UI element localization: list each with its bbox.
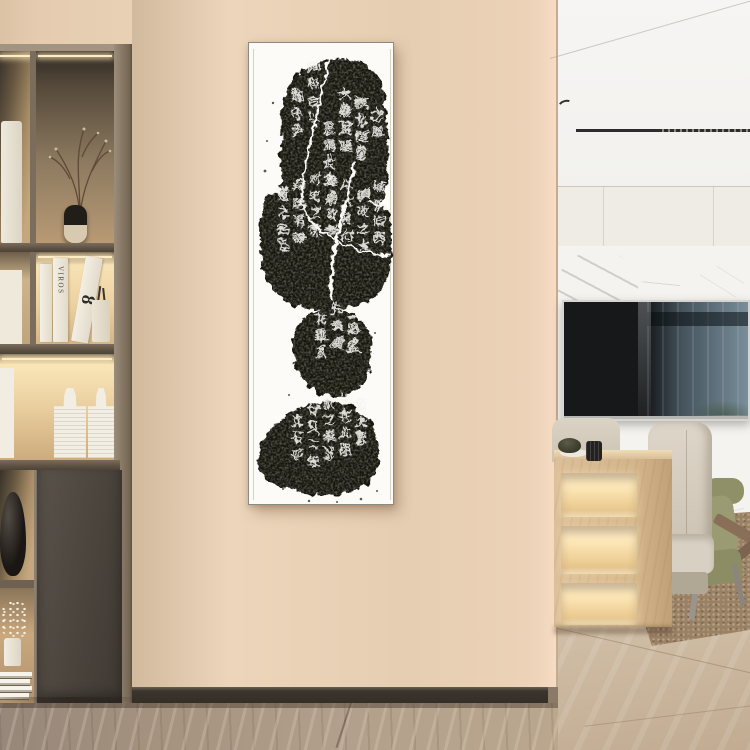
interior-scene: 壼化度堂大樂盈隆是請佐之御和合以郡守尹之風城攸伯西鎮收之大以大將付建廟政李刺史之… [0, 0, 750, 750]
built-in-shelving-unit: VIROS 8 [0, 44, 132, 705]
cubby-dark-vase [0, 470, 34, 580]
rubbing-texture [249, 43, 395, 506]
tv-reflection-band [647, 312, 748, 326]
shelf-board [0, 460, 120, 470]
black-gourd-vase [0, 492, 26, 576]
linear-vent-grille [658, 129, 750, 132]
ribbed-vase [54, 388, 86, 458]
sideboard-floor-shadow [554, 626, 672, 634]
panel-seam [603, 187, 604, 246]
chair-upholstery-seam [686, 430, 687, 534]
art-print-decor [0, 368, 14, 458]
lit-shelf-recess [561, 473, 637, 517]
wall-shadow-gradient [132, 0, 227, 705]
shelf-divider [0, 580, 34, 588]
marble-floor-veins [0, 703, 558, 750]
floor-wall-shadow [0, 703, 558, 708]
cubby-small-top [0, 51, 30, 243]
tv-curtain-reflection [638, 302, 651, 419]
shelf-board [0, 344, 114, 354]
babys-breath-flowers [0, 600, 30, 638]
adjacent-living-room [558, 0, 750, 750]
book-spine-title: VIROS [57, 266, 65, 295]
shelf-led-strip [0, 55, 30, 57]
rubbing-svg: 壼化度堂大樂盈隆是請佐之御和合以郡守尹之風城攸伯西鎮收之大以大將付建廟政李刺史之… [249, 43, 395, 506]
capsule-vase [64, 205, 87, 243]
white-pillar-decor [1, 121, 22, 243]
wall-mounted-tv [562, 300, 750, 421]
cabinet-door [36, 470, 122, 703]
vase-ridges [54, 408, 86, 458]
book-spine-viros: VIROS [53, 258, 68, 342]
dark-bowl [558, 438, 581, 453]
cubby-branch-vase [36, 51, 114, 243]
book-spine [40, 264, 52, 342]
marble-vein [698, 266, 744, 300]
vase-ridges [88, 408, 114, 458]
cubby-vases [0, 354, 114, 460]
shelf-led-strip [38, 55, 112, 57]
tv-landscape-reflection [671, 395, 748, 415]
pen-cup [92, 300, 110, 342]
stacked-book [0, 686, 32, 693]
linear-ceiling-light [576, 129, 658, 132]
backlit-sideboard [554, 450, 672, 638]
ribbed-vase [88, 388, 114, 458]
shelf-led-strip [2, 358, 112, 360]
black-ribbed-cup [586, 441, 602, 461]
lit-shelf-recess [561, 583, 637, 625]
small-white-vase [4, 638, 21, 666]
svg-text:佰: 佰 [355, 397, 368, 412]
cubby-small-mid [0, 252, 30, 344]
shelf-board [0, 243, 114, 252]
panel-seam [713, 187, 714, 246]
shelf-top-rail [0, 44, 132, 51]
calligraphy-rubbing-scroll: 壼化度堂大樂盈隆是請佐之御和合以郡守尹之風城攸伯西鎮收之大以大將付建廟政李刺史之… [248, 42, 394, 505]
stacked-book [0, 679, 30, 686]
white-frame-decor [0, 270, 22, 344]
cubby-flowers [0, 588, 34, 705]
cubby-books: VIROS 8 [36, 252, 114, 344]
wall-panels [558, 187, 750, 246]
lit-shelf-recess [561, 526, 637, 574]
marble-floor [0, 703, 558, 750]
stacked-book [0, 672, 32, 679]
dry-branches [40, 109, 112, 215]
